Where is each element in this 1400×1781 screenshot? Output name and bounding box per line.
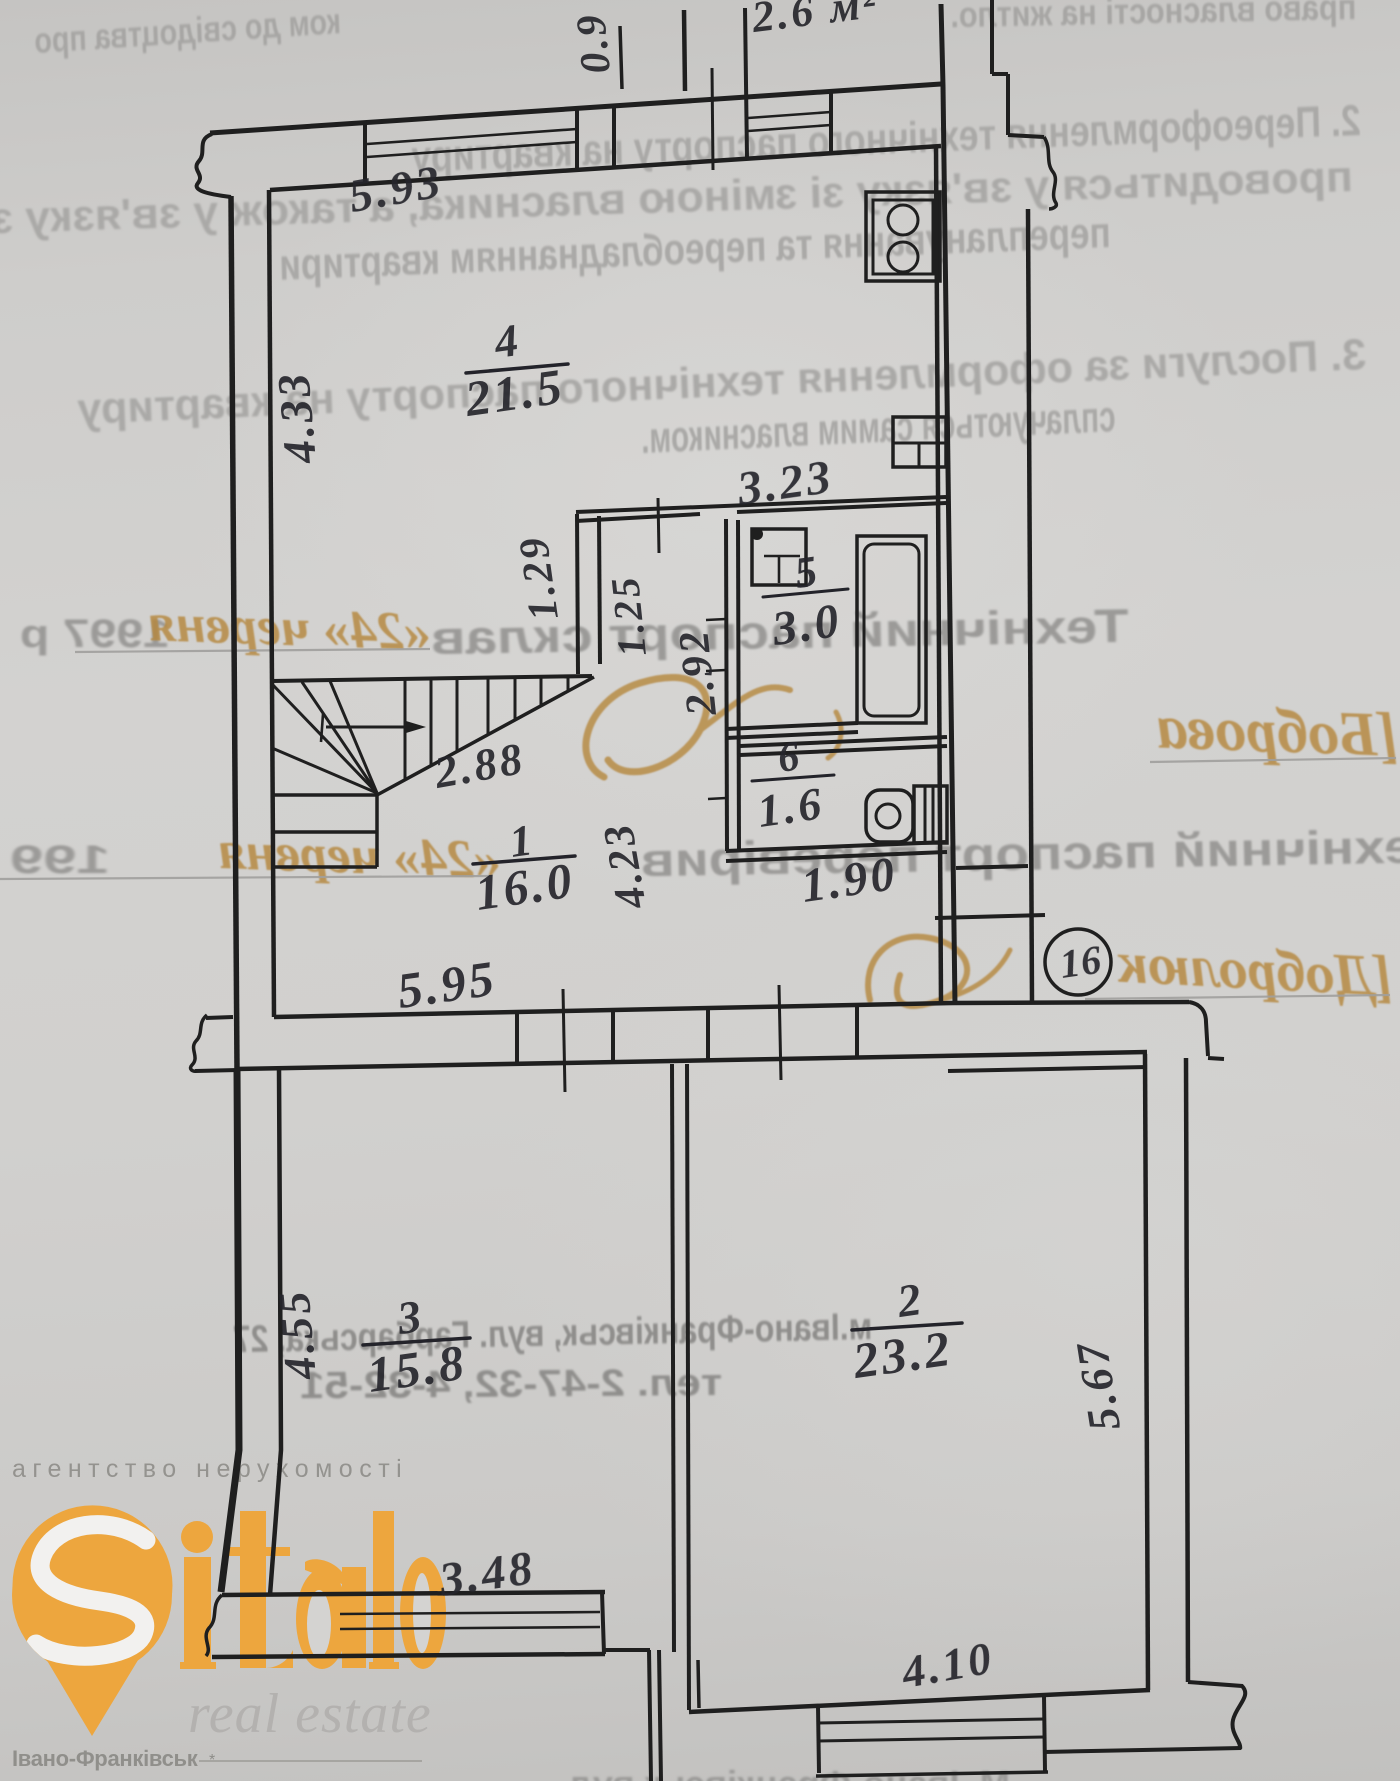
svg-text:4.23: 4.23 — [594, 818, 656, 913]
svg-text:6: 6 — [775, 733, 805, 782]
svg-text:3.0: 3.0 — [768, 594, 845, 656]
svg-text:1.29: 1.29 — [510, 532, 567, 623]
svg-text:3.48: 3.48 — [435, 1541, 538, 1607]
svg-text:3.23: 3.23 — [733, 450, 836, 516]
svg-text:4: 4 — [490, 314, 524, 368]
svg-text:2.6 м²: 2.6 м² — [748, 0, 881, 42]
svg-text:5.95: 5.95 — [394, 950, 500, 1019]
svg-text:3: 3 — [393, 1290, 427, 1344]
svg-text:0.9: 0.9 — [568, 10, 620, 76]
svg-text:2.92: 2.92 — [670, 626, 726, 719]
svg-text:2: 2 — [893, 1273, 927, 1327]
svg-text:1.6: 1.6 — [754, 777, 827, 837]
svg-text:5.67: 5.67 — [1066, 1337, 1130, 1434]
svg-text:1.25: 1.25 — [602, 573, 655, 659]
svg-text:2.88: 2.88 — [430, 733, 529, 798]
svg-text:4.10: 4.10 — [897, 1632, 998, 1698]
svg-text:5: 5 — [792, 546, 824, 598]
svg-text:5.93: 5.93 — [345, 155, 447, 223]
svg-text:4.55: 4.55 — [268, 1287, 326, 1383]
svg-text:16: 16 — [1057, 937, 1105, 987]
svg-text:4.33: 4.33 — [267, 369, 326, 467]
